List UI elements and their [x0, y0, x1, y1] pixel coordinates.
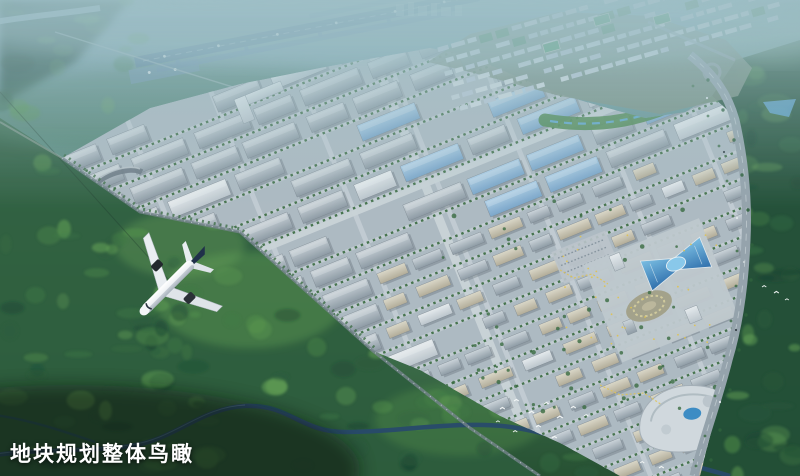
- caption-title: 地块规划整体鸟瞰: [10, 438, 194, 468]
- masterplan-scene: [0, 0, 800, 476]
- aerial-render: 地块规划整体鸟瞰: [0, 0, 800, 476]
